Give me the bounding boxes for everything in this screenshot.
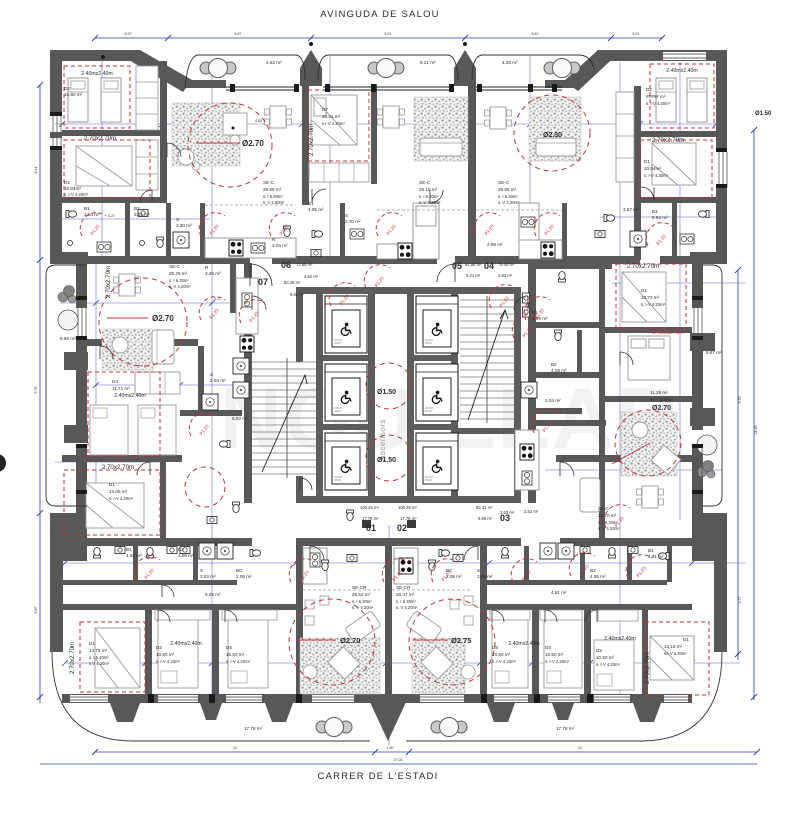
svg-text:10.50 m²: 10.50 m² [226, 652, 245, 657]
svg-text:SE-C: SE-C [598, 506, 610, 511]
svg-text:3.64 m²: 3.64 m² [84, 212, 100, 217]
svg-text:B2: B2 [590, 568, 596, 573]
svg-text:2.40mx2.40m: 2.40mx2.40m [652, 330, 683, 336]
svg-text:Ø1.50: Ø1.50 [755, 111, 772, 117]
svg-text:2.40mx2.40m: 2.40mx2.40m [170, 641, 201, 647]
svg-text:Ø1.50: Ø1.50 [377, 389, 396, 396]
svg-text:2.70x2.70m: 2.70x2.70m [105, 266, 112, 298]
svg-text:4.56 m²: 4.56 m² [178, 553, 194, 558]
svg-text:D1: D1 [109, 482, 115, 487]
svg-text:s.V 4.20m²: s.V 4.20m² [89, 661, 110, 666]
svg-text:10.50 m²: 10.50 m² [156, 652, 175, 657]
svg-text:10.51 m²: 10.51 m² [322, 114, 341, 119]
svg-text:13.18 m²: 13.18 m² [664, 644, 683, 649]
svg-text:10.50 m²: 10.50 m² [596, 655, 615, 660]
svg-text:2.70x2.70m: 2.70x2.70m [69, 642, 76, 674]
svg-text:5.97: 5.97 [125, 32, 132, 36]
svg-text:13.73 m²: 13.73 m² [641, 295, 660, 300]
svg-text:CARRER DE L'ESTADI: CARRER DE L'ESTADI [318, 771, 439, 782]
svg-text:2.70x2.70m: 2.70x2.70m [308, 124, 315, 156]
svg-text:s. I 6.30m²: s. I 6.30m² [169, 278, 189, 283]
svg-text:4.56 m²: 4.56 m² [590, 574, 606, 579]
svg-text:83.32 m²: 83.32 m² [476, 505, 493, 510]
svg-text:s.I-V 4.20m²: s.I-V 4.20m² [322, 121, 345, 126]
svg-text:28.47 m²: 28.47 m² [396, 592, 415, 597]
svg-text:D1: D1 [641, 288, 647, 293]
svg-text:01: 01 [366, 523, 376, 533]
svg-text:2.08 m²: 2.08 m² [446, 574, 462, 579]
svg-text:s. V 4.20m²: s. V 4.20m² [352, 605, 374, 610]
svg-text:3.53 m²: 3.53 m² [500, 510, 515, 515]
svg-text:5.69 m²: 5.69 m² [532, 316, 548, 321]
svg-text:S: S [200, 568, 203, 573]
svg-text:17.78 m²: 17.78 m² [556, 726, 575, 731]
svg-text:Ø1.50: Ø1.50 [377, 457, 396, 464]
svg-text:2.40mx2.40m: 2.40mx2.40m [114, 393, 145, 399]
svg-text:Ø2.70: Ø2.70 [340, 636, 360, 645]
svg-text:D4: D4 [112, 379, 118, 384]
svg-text:s.I-V 4.20m²: s.I-V 4.20m² [650, 397, 673, 402]
svg-text:B2: B2 [551, 362, 557, 367]
svg-text:2.30 m²: 2.30 m² [176, 223, 192, 228]
svg-text:2.40mx2.40m: 2.40mx2.40m [604, 636, 635, 642]
svg-text:5.87: 5.87 [235, 32, 242, 36]
svg-text:s. V 4.20m²: s. V 4.20m² [396, 605, 418, 610]
svg-text:s. I-V 4.20m²: s. I-V 4.20m² [492, 659, 517, 664]
svg-text:5.76: 5.76 [34, 387, 38, 394]
svg-text:4.62: 4.62 [255, 119, 262, 123]
svg-text:2.06 m²: 2.06 m² [236, 574, 252, 579]
svg-text:5.93 m²: 5.93 m² [232, 416, 248, 421]
svg-text:5.25 m²: 5.25 m² [205, 592, 221, 597]
svg-text:11.71 m²: 11.71 m² [112, 386, 130, 391]
svg-text:1.50: 1.50 [387, 746, 394, 750]
svg-text:Ø2.70: Ø2.70 [652, 405, 671, 412]
svg-text:s.I-V 4.30m²: s.I-V 4.30m² [664, 651, 687, 656]
svg-text:s. V 4.20m²: s. V 4.20m² [598, 526, 620, 531]
svg-text:02: 02 [397, 523, 407, 533]
svg-text:2.40mx2.40m: 2.40mx2.40m [508, 641, 539, 647]
svg-text:17.76 m²: 17.76 m² [362, 516, 379, 521]
svg-text:2.70x2.70m: 2.70x2.70m [652, 137, 684, 144]
svg-text:24.68: 24.68 [754, 426, 758, 435]
svg-text:S: S [176, 217, 179, 222]
svg-text:27.02: 27.02 [394, 758, 403, 762]
svg-text:D5: D5 [226, 645, 232, 650]
svg-text:5.21: 5.21 [385, 32, 392, 36]
svg-text:Ø2.70: Ø2.70 [152, 314, 174, 323]
svg-text:4.33 m²: 4.33 m² [502, 60, 518, 65]
svg-text:SE-C: SE-C [498, 180, 510, 185]
svg-text:s. I-V 4.20m²: s. I-V 4.20m² [64, 192, 89, 197]
svg-text:29.86 m²: 29.86 m² [498, 187, 517, 192]
svg-text:28.70 m²: 28.70 m² [598, 513, 617, 518]
svg-text:B1: B1 [652, 209, 658, 214]
svg-text:s. V 4.60m²: s. V 4.60m² [263, 200, 285, 205]
svg-text:SE-CR: SE-CR [396, 585, 411, 590]
svg-text:12: 12 [578, 746, 582, 750]
svg-text:10.50 m²: 10.50 m² [492, 652, 511, 657]
svg-text:07: 07 [258, 277, 268, 287]
svg-text:10.50 m²: 10.50 m² [545, 652, 564, 657]
svg-text:11.25 m²: 11.25 m² [650, 390, 668, 395]
svg-text:BC: BC [236, 568, 243, 573]
svg-text:5.87: 5.87 [34, 607, 38, 614]
svg-text:SE-C: SE-C [169, 264, 181, 269]
svg-text:B1: B1 [532, 310, 538, 315]
svg-text:s. V 4.20m²: s. V 4.20m² [169, 284, 191, 289]
svg-text:29.88 m²: 29.88 m² [263, 187, 282, 192]
svg-text:s. I 6.30m²: s. I 6.30m² [352, 599, 372, 604]
svg-text:28.52 m²: 28.52 m² [352, 592, 371, 597]
svg-text:4.27: 4.27 [108, 214, 115, 218]
svg-text:9.60 m²: 9.60 m² [290, 292, 305, 297]
svg-text:D2: D2 [646, 87, 652, 92]
svg-text:S: S [477, 568, 480, 573]
svg-text:4.62 m²: 4.62 m² [304, 274, 319, 279]
svg-text:2.98 m²: 2.98 m² [487, 242, 503, 247]
svg-text:D1: D1 [64, 180, 70, 185]
svg-text:4.91 m²: 4.91 m² [648, 554, 664, 559]
svg-text:s. I 6.30m²: s. I 6.30m² [396, 599, 416, 604]
svg-text:Ø2.75: Ø2.75 [451, 636, 471, 645]
svg-text:9.66 m²: 9.66 m² [60, 336, 76, 341]
svg-text:12: 12 [233, 746, 237, 750]
svg-text:100.26 m²: 100.26 m² [398, 505, 417, 510]
svg-text:5.64 m²: 5.64 m² [652, 215, 668, 220]
svg-text:s. I-V 4.20m²: s. I-V 4.20m² [226, 659, 251, 664]
svg-text:B1: B1 [308, 201, 314, 206]
svg-text:s. I-V 4.20m²: s. I-V 4.20m² [641, 302, 666, 307]
svg-text:2.70x2.70m: 2.70x2.70m [644, 652, 651, 684]
svg-text:5.75: 5.75 [738, 397, 742, 404]
svg-text:2.03 m²: 2.03 m² [200, 574, 216, 579]
svg-text:S: S [345, 213, 348, 218]
svg-text:B1: B1 [126, 547, 132, 552]
svg-text:9.60 m²: 9.60 m² [478, 516, 493, 521]
svg-text:2.70x2.70m: 2.70x2.70m [102, 464, 134, 471]
svg-text:5.21 m²: 5.21 m² [466, 273, 481, 278]
svg-text:Ascensors: Ascensors [378, 419, 387, 461]
svg-text:17.78 m²: 17.78 m² [244, 726, 263, 731]
svg-text:SE-CR: SE-CR [352, 585, 367, 590]
svg-text:2.70x2.70m: 2.70x2.70m [627, 263, 659, 270]
svg-text:4.81 m²: 4.81 m² [551, 590, 567, 595]
svg-text:3.04 m²: 3.04 m² [272, 243, 288, 248]
svg-text:4.82 m²: 4.82 m² [498, 273, 513, 278]
svg-text:4.92 m²: 4.92 m² [126, 553, 142, 558]
svg-text:3.57 m²: 3.57 m² [623, 207, 639, 212]
svg-text:s. I-V 4.20m²: s. I-V 4.20m² [156, 659, 181, 664]
svg-text:s. I-V 4.30m²: s. I-V 4.30m² [644, 173, 669, 178]
svg-text:D7: D7 [322, 107, 328, 112]
svg-text:8.41: 8.41 [34, 167, 38, 174]
svg-text:D2: D2 [64, 86, 70, 91]
svg-text:5.87: 5.87 [532, 32, 539, 36]
svg-text:2.40mx2.40m: 2.40mx2.40m [666, 68, 697, 74]
svg-text:3.52 m²: 3.52 m² [524, 509, 539, 514]
svg-text:s. I-V 4.20m²: s. I-V 4.20m² [545, 659, 570, 664]
svg-text:10.84m²: 10.84m² [64, 186, 81, 191]
svg-text:D2: D2 [156, 645, 162, 650]
svg-text:s. I 6.30m²: s. I 6.30m² [419, 194, 439, 199]
svg-text:B1: B1 [648, 548, 654, 553]
svg-text:Ø2.30: Ø2.30 [543, 132, 562, 139]
svg-text:26.19 m²: 26.19 m² [419, 187, 438, 192]
svg-text:2.70x2.70m: 2.70x2.70m [84, 135, 116, 142]
svg-text:B2: B2 [134, 206, 140, 211]
svg-text:10.84m²: 10.84m² [644, 166, 661, 171]
svg-text:Ø2.70: Ø2.70 [242, 139, 264, 148]
svg-text:D2: D2 [596, 648, 602, 653]
svg-text:s. I 6.30m²: s. I 6.30m² [598, 520, 618, 525]
svg-text:17.76 m²: 17.76 m² [400, 516, 417, 521]
svg-text:3.51 m²: 3.51 m² [134, 212, 150, 217]
svg-text:s. I 6.90m²: s. I 6.90m² [263, 194, 283, 199]
svg-text:2.04 m²: 2.04 m² [545, 398, 561, 403]
svg-text:D1: D1 [683, 637, 689, 642]
svg-text:BC: BC [446, 568, 453, 573]
svg-text:2.70 m²: 2.70 m² [345, 219, 361, 224]
svg-text:14.05 m²: 14.05 m² [109, 489, 128, 494]
svg-text:B1: B1 [84, 206, 90, 211]
svg-text:04: 04 [484, 261, 494, 271]
svg-text:10.80 m²: 10.80 m² [64, 92, 83, 97]
svg-text:D1: D1 [644, 159, 650, 164]
svg-text:25.29 m²: 25.29 m² [169, 271, 188, 276]
svg-text:14.75 m²: 14.75 m² [89, 648, 108, 653]
svg-text:9.67 m²: 9.67 m² [706, 350, 722, 355]
svg-text:S: S [210, 372, 213, 377]
svg-text:s. I-V 4.20m²: s. I-V 4.20m² [596, 662, 621, 667]
svg-text:4.62 m²: 4.62 m² [266, 60, 282, 65]
svg-text:D1: D1 [89, 641, 95, 646]
svg-text:B2: B2 [178, 547, 184, 552]
svg-text:83.28 m²: 83.28 m² [284, 280, 301, 285]
svg-text:s. V 4.20m²: s. V 4.20m² [419, 200, 441, 205]
svg-text:s. I 6.30m²: s. I 6.30m² [498, 194, 518, 199]
svg-text:AVINGUDA DE SALOU: AVINGUDA DE SALOU [320, 9, 439, 20]
svg-text:s. V 4.20m²: s. V 4.20m² [498, 200, 520, 205]
svg-text:s. I 5.40m²: s. I 5.40m² [89, 655, 109, 660]
svg-text:D6: D6 [492, 645, 498, 650]
svg-text:s. I-V 4.20m²: s. I-V 4.20m² [109, 496, 134, 501]
svg-text:2.40mx2.40m: 2.40mx2.40m [81, 71, 112, 77]
svg-text:79.45 m²: 79.45 m² [498, 262, 515, 267]
svg-text:100.26 m²: 100.26 m² [360, 505, 379, 510]
svg-text:s. I-V 4.20m²: s. I-V 4.20m² [646, 101, 671, 106]
svg-text:2.05 m²: 2.05 m² [477, 574, 493, 579]
svg-text:05: 05 [452, 261, 462, 271]
svg-text:72.68 m²: 72.68 m² [296, 262, 313, 267]
svg-text:5.21: 5.21 [633, 32, 640, 36]
svg-text:SE-C: SE-C [419, 180, 431, 185]
svg-text:06: 06 [281, 260, 291, 270]
svg-text:2.04 m²: 2.04 m² [210, 378, 226, 383]
svg-text:3.46 m²: 3.46 m² [205, 271, 221, 276]
svg-text:9.21 m²: 9.21 m² [420, 60, 436, 65]
svg-text:91.58 m²: 91.58 m² [465, 262, 482, 267]
svg-text:##### m²: ##### m² [646, 94, 666, 99]
svg-text:3.77: 3.77 [738, 597, 742, 604]
svg-text:D5: D5 [545, 645, 551, 650]
svg-text:SE-C: SE-C [263, 180, 275, 185]
svg-text:4.05 m²: 4.05 m² [308, 207, 324, 212]
svg-text:4.09 m²: 4.09 m² [551, 368, 567, 373]
